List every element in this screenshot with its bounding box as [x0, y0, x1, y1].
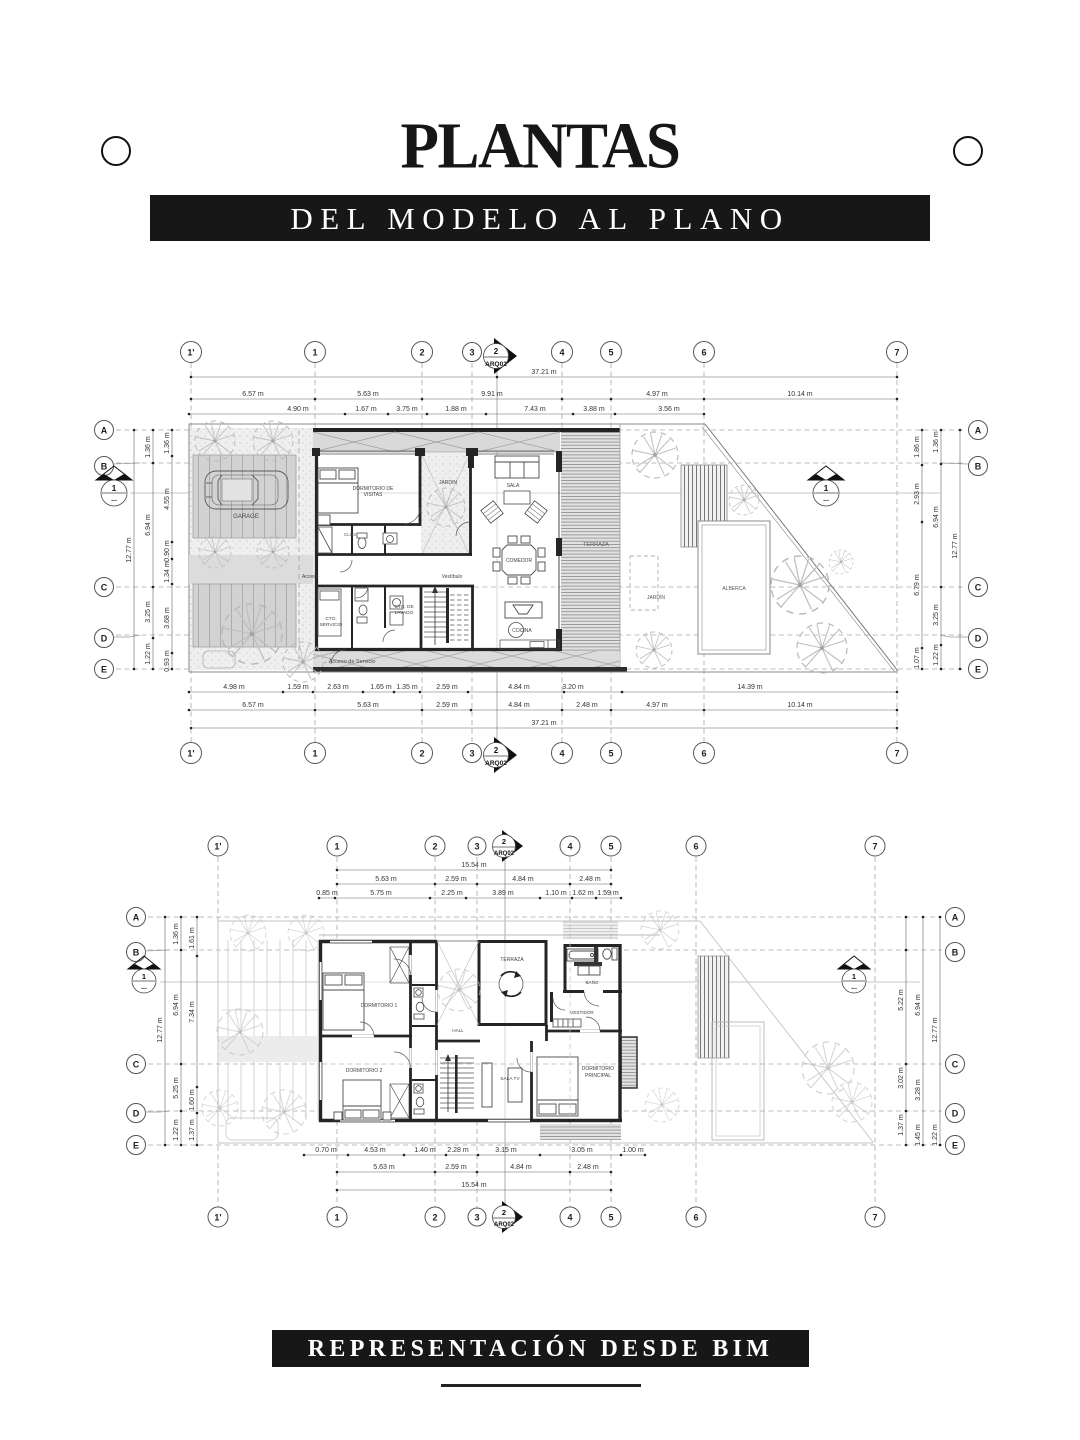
svg-text:DORMITORIO: DORMITORIO [582, 1066, 615, 1072]
svg-text:7.34 m: 7.34 m [189, 1001, 196, 1023]
svg-text:2.48 m: 2.48 m [577, 1164, 599, 1171]
svg-text:4.97 m: 4.97 m [646, 702, 668, 709]
svg-text:4.84 m: 4.84 m [508, 702, 530, 709]
svg-text:2: 2 [494, 746, 499, 755]
svg-text:1': 1' [214, 842, 221, 852]
svg-text:1.59 m: 1.59 m [597, 890, 619, 897]
svg-text:SALA TV: SALA TV [500, 1076, 520, 1082]
svg-text:BAÑO: BAÑO [585, 979, 598, 985]
svg-text:1.22 m: 1.22 m [932, 1124, 939, 1146]
svg-text:4: 4 [559, 348, 564, 358]
svg-text:1.07 m: 1.07 m [914, 647, 921, 669]
svg-text:1.36 m: 1.36 m [173, 923, 180, 945]
svg-text:SERVICIO: SERVICIO [320, 622, 343, 628]
svg-text:C: C [952, 1060, 959, 1070]
svg-text:6: 6 [701, 749, 706, 759]
svg-text:1.00 m: 1.00 m [622, 1147, 644, 1154]
svg-text:...: ... [851, 984, 857, 991]
svg-text:15.54 m: 15.54 m [461, 1182, 486, 1189]
svg-text:D: D [975, 634, 982, 644]
svg-text:1': 1' [187, 348, 194, 358]
svg-text:4.84 m: 4.84 m [512, 876, 534, 883]
svg-text:5: 5 [608, 842, 613, 852]
svg-text:1: 1 [824, 484, 829, 493]
svg-text:6.79 m: 6.79 m [914, 574, 921, 596]
svg-text:HALL: HALL [452, 1028, 464, 1033]
svg-text:1.86 m: 1.86 m [914, 436, 921, 458]
svg-text:7: 7 [894, 749, 899, 759]
svg-text:1.59 m: 1.59 m [287, 684, 309, 691]
svg-text:12.77 m: 12.77 m [126, 537, 133, 562]
svg-text:COMEDOR: COMEDOR [506, 558, 533, 564]
svg-text:6.94 m: 6.94 m [915, 994, 922, 1016]
svg-text:2: 2 [494, 347, 499, 356]
svg-text:5.22 m: 5.22 m [898, 989, 905, 1011]
svg-text:3: 3 [469, 749, 474, 759]
svg-text:A: A [975, 426, 982, 436]
svg-text:B: B [975, 462, 982, 472]
svg-text:Acceso: Acceso [302, 574, 319, 580]
svg-text:1.22 m: 1.22 m [173, 1119, 180, 1141]
svg-text:ALBERCA: ALBERCA [722, 586, 746, 592]
svg-text:→ Acceso de Servicio: → Acceso de Servicio [322, 659, 376, 665]
svg-text:2: 2 [502, 837, 506, 846]
svg-text:6.57 m: 6.57 m [242, 391, 264, 398]
svg-text:2: 2 [432, 842, 437, 852]
svg-text:E: E [975, 665, 981, 675]
svg-text:4.84 m: 4.84 m [508, 684, 530, 691]
svg-text:1.36 m: 1.36 m [164, 432, 171, 454]
svg-text:VESTIDOR: VESTIDOR [570, 1010, 594, 1015]
svg-text:4: 4 [559, 749, 564, 759]
svg-text:...: ... [141, 984, 147, 991]
svg-text:A: A [101, 426, 108, 436]
svg-text:1: 1 [852, 972, 856, 981]
svg-text:6: 6 [693, 1213, 698, 1223]
svg-text:B: B [101, 462, 108, 472]
svg-text:1: 1 [334, 842, 339, 852]
svg-text:4.55 m: 4.55 m [164, 488, 171, 510]
svg-text:2.48 m: 2.48 m [579, 876, 601, 883]
svg-text:2: 2 [419, 749, 424, 759]
svg-text:A: A [133, 913, 140, 923]
svg-text:ARQ02: ARQ02 [494, 851, 515, 857]
svg-text:3.15 m: 3.15 m [495, 1147, 517, 1154]
svg-text:DORMITORIO 2: DORMITORIO 2 [346, 1068, 383, 1074]
svg-text:...: ... [111, 496, 117, 503]
svg-text:1.22 m: 1.22 m [145, 643, 152, 665]
svg-text:4.98 m: 4.98 m [223, 684, 245, 691]
svg-text:3.02 m: 3.02 m [898, 1067, 905, 1089]
svg-text:JARDIN: JARDIN [439, 480, 457, 486]
svg-text:3.05 m: 3.05 m [571, 1147, 593, 1154]
svg-text:12.77 m: 12.77 m [157, 1017, 164, 1042]
svg-text:1.60 m: 1.60 m [189, 1089, 196, 1111]
svg-text:4.97 m: 4.97 m [646, 391, 668, 398]
svg-text:1.10 m: 1.10 m [545, 890, 567, 897]
svg-text:3: 3 [474, 842, 479, 852]
svg-text:6.94 m: 6.94 m [145, 514, 152, 536]
svg-text:12.77 m: 12.77 m [932, 1017, 939, 1042]
svg-text:1.88 m: 1.88 m [445, 406, 467, 413]
svg-text:3.68 m: 3.68 m [164, 607, 171, 629]
svg-text:1.35 m: 1.35 m [396, 684, 418, 691]
svg-text:...: ... [823, 496, 829, 503]
svg-text:2: 2 [419, 348, 424, 358]
svg-text:1': 1' [187, 749, 194, 759]
svg-text:1.22 m: 1.22 m [933, 644, 940, 666]
svg-text:JARDÍN: JARDÍN [647, 594, 665, 601]
svg-text:E: E [952, 1141, 958, 1151]
svg-text:CLOS: CLOS [344, 532, 356, 537]
svg-text:2.59 m: 2.59 m [445, 876, 467, 883]
svg-text:1: 1 [334, 1213, 339, 1223]
svg-text:3.56 m: 3.56 m [658, 406, 680, 413]
svg-text:E: E [101, 665, 107, 675]
svg-text:7: 7 [872, 842, 877, 852]
svg-text:ARQ02: ARQ02 [485, 760, 507, 767]
svg-text:2.25 m: 2.25 m [441, 890, 463, 897]
svg-text:5.25 m: 5.25 m [173, 1077, 180, 1099]
svg-text:6: 6 [701, 348, 706, 358]
svg-text:1.65 m: 1.65 m [370, 684, 392, 691]
svg-text:3.88 m: 3.88 m [583, 406, 605, 413]
svg-text:1: 1 [312, 348, 317, 358]
svg-text:3.89 m: 3.89 m [492, 890, 514, 897]
svg-text:3.25 m: 3.25 m [933, 604, 940, 626]
svg-text:0.90 m: 0.90 m [164, 540, 171, 562]
svg-text:1: 1 [312, 749, 317, 759]
svg-text:1.61 m: 1.61 m [189, 927, 196, 949]
svg-text:5: 5 [608, 1213, 613, 1223]
svg-text:4.53 m: 4.53 m [364, 1147, 386, 1154]
svg-text:VISITAS: VISITAS [364, 492, 383, 498]
svg-text:DORMITORIO 1: DORMITORIO 1 [361, 1003, 398, 1009]
svg-text:3.25 m: 3.25 m [145, 601, 152, 623]
svg-text:1: 1 [142, 972, 146, 981]
svg-text:C: C [101, 583, 108, 593]
svg-text:1.36 m: 1.36 m [145, 436, 152, 458]
svg-text:C: C [975, 583, 982, 593]
svg-text:2.59 m: 2.59 m [436, 702, 458, 709]
svg-text:5.63 m: 5.63 m [375, 876, 397, 883]
svg-text:1.36 m: 1.36 m [933, 431, 940, 453]
svg-text:0.70 m: 0.70 m [315, 1147, 337, 1154]
svg-text:1.67 m: 1.67 m [355, 406, 377, 413]
svg-text:4.90 m: 4.90 m [287, 406, 309, 413]
svg-text:1: 1 [112, 484, 117, 493]
svg-text:CTO. DE: CTO. DE [394, 604, 413, 610]
svg-text:1.45 m: 1.45 m [915, 1124, 922, 1146]
svg-text:0.93 m: 0.93 m [164, 650, 171, 672]
svg-text:37.21 m: 37.21 m [531, 720, 556, 727]
svg-text:TERRAZA: TERRAZA [500, 957, 524, 963]
svg-text:3: 3 [474, 1213, 479, 1223]
svg-text:1.62 m: 1.62 m [572, 890, 594, 897]
svg-text:5: 5 [608, 749, 613, 759]
svg-text:7: 7 [894, 348, 899, 358]
svg-text:SALA: SALA [507, 483, 520, 489]
svg-text:6.94 m: 6.94 m [173, 994, 180, 1016]
svg-text:2.59 m: 2.59 m [436, 684, 458, 691]
svg-text:3: 3 [469, 348, 474, 358]
svg-text:2.48 m: 2.48 m [576, 702, 598, 709]
svg-text:15.54 m: 15.54 m [461, 862, 486, 869]
svg-text:1': 1' [214, 1213, 221, 1223]
svg-text:E: E [133, 1141, 139, 1151]
svg-text:GARAGE: GARAGE [233, 514, 259, 520]
svg-text:CTO.: CTO. [325, 616, 336, 622]
svg-text:1.34 m: 1.34 m [164, 561, 171, 583]
svg-text:1.40 m: 1.40 m [414, 1147, 436, 1154]
svg-text:Vestíbulo: Vestíbulo [442, 574, 463, 580]
svg-text:0.85 m: 0.85 m [316, 890, 338, 897]
svg-text:D: D [133, 1109, 140, 1119]
svg-text:2.59 m: 2.59 m [445, 1164, 467, 1171]
svg-text:1.37 m: 1.37 m [189, 1119, 196, 1141]
svg-text:6.57 m: 6.57 m [242, 702, 264, 709]
svg-text:ARQ02: ARQ02 [494, 1222, 515, 1228]
svg-text:2.28 m: 2.28 m [447, 1147, 469, 1154]
svg-text:4: 4 [567, 1213, 572, 1223]
svg-text:12.77 m: 12.77 m [952, 533, 959, 558]
svg-text:PRINCIPAL: PRINCIPAL [585, 1073, 611, 1079]
svg-text:6: 6 [693, 842, 698, 852]
svg-text:5.63 m: 5.63 m [357, 391, 379, 398]
svg-text:6.94 m: 6.94 m [933, 506, 940, 528]
svg-text:TERRAZA: TERRAZA [583, 542, 609, 548]
svg-text:5.75 m: 5.75 m [370, 890, 392, 897]
svg-text:1.37 m: 1.37 m [898, 1114, 905, 1136]
svg-text:ARQ02: ARQ02 [485, 361, 507, 368]
svg-text:5: 5 [608, 348, 613, 358]
svg-text:D: D [952, 1109, 959, 1119]
svg-text:3.20 m: 3.20 m [562, 684, 584, 691]
svg-text:7: 7 [872, 1213, 877, 1223]
svg-text:10.14 m: 10.14 m [787, 702, 812, 709]
svg-text:2.63 m: 2.63 m [327, 684, 349, 691]
svg-text:A: A [952, 913, 959, 923]
svg-text:4.84 m: 4.84 m [510, 1164, 532, 1171]
svg-text:COCINA: COCINA [512, 628, 532, 634]
svg-text:4: 4 [567, 842, 572, 852]
svg-text:B: B [952, 948, 959, 958]
svg-text:5.63 m: 5.63 m [373, 1164, 395, 1171]
svg-text:2: 2 [502, 1208, 506, 1217]
svg-text:14.39 m: 14.39 m [737, 684, 762, 691]
svg-text:D: D [101, 634, 108, 644]
svg-text:37.21 m: 37.21 m [531, 369, 556, 376]
svg-text:C: C [133, 1060, 140, 1070]
svg-text:LAVADO: LAVADO [395, 610, 414, 616]
svg-text:10.14 m: 10.14 m [787, 391, 812, 398]
svg-text:7.43 m: 7.43 m [524, 406, 546, 413]
svg-text:B: B [133, 948, 140, 958]
svg-text:5.63 m: 5.63 m [357, 702, 379, 709]
svg-text:3.28 m: 3.28 m [915, 1079, 922, 1101]
svg-text:2.93 m: 2.93 m [914, 483, 921, 505]
svg-text:2: 2 [432, 1213, 437, 1223]
svg-text:3.75 m: 3.75 m [396, 406, 418, 413]
svg-text:9.91 m: 9.91 m [481, 391, 503, 398]
